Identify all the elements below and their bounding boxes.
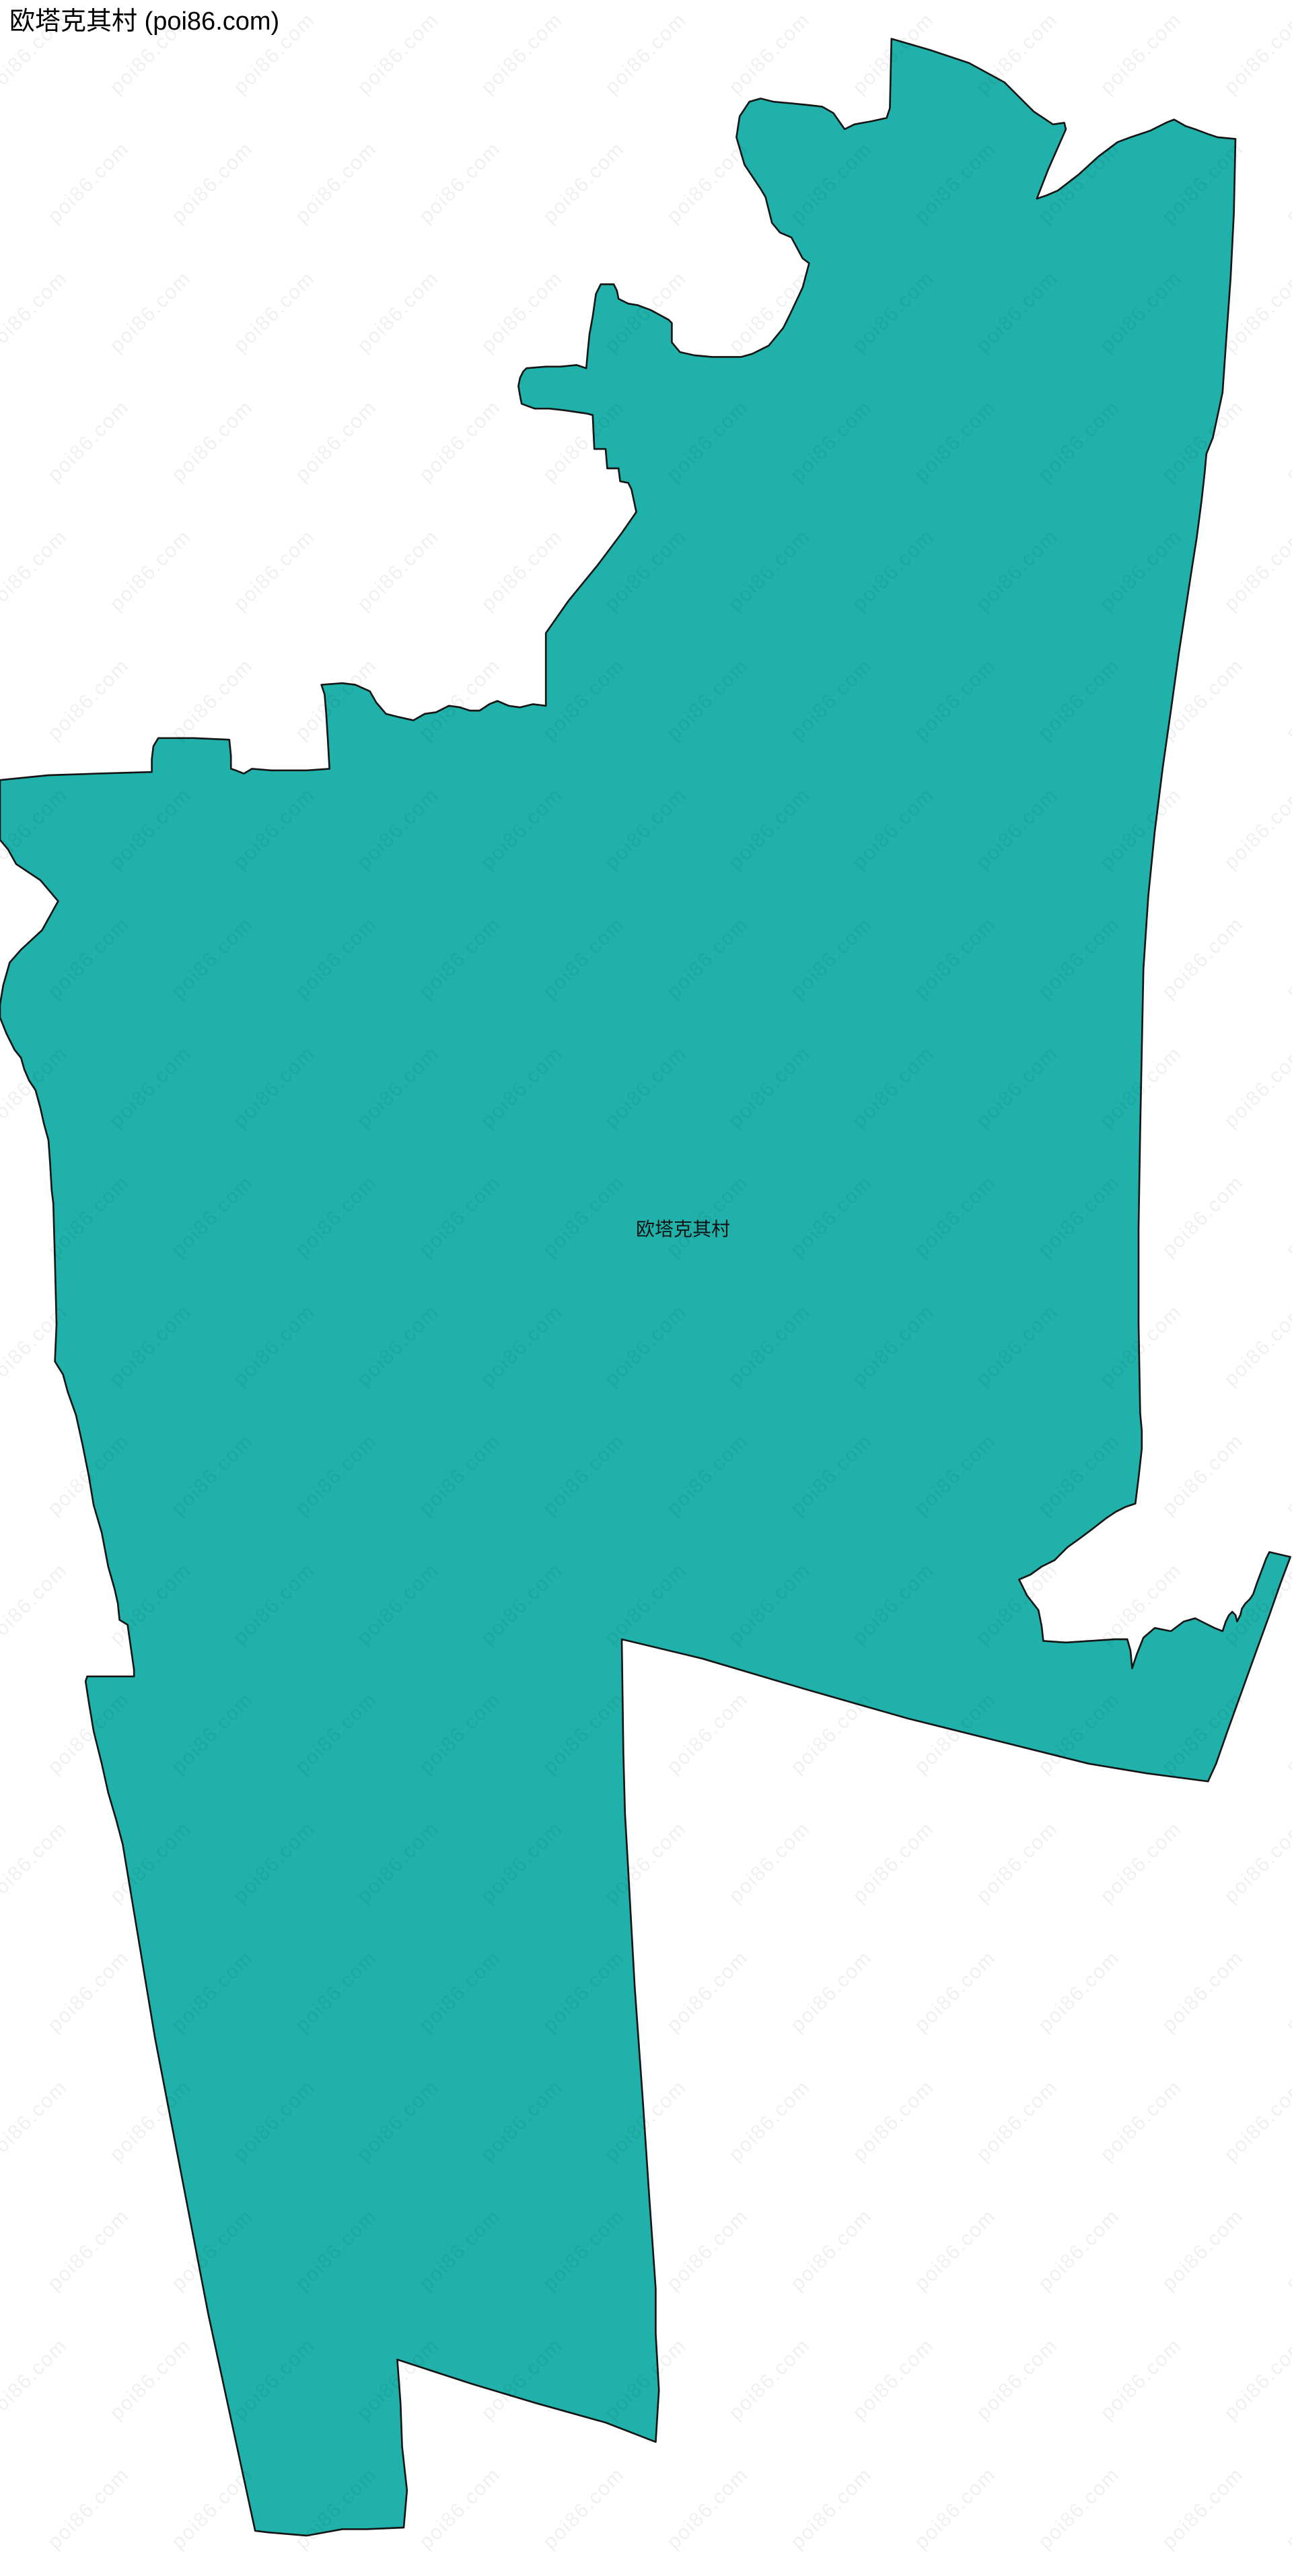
- region-map-svg: [0, 0, 1292, 2576]
- region-label: 欧塔克其村: [636, 1215, 730, 1242]
- page-title: 欧塔克其村 (poi86.com): [9, 7, 279, 38]
- map-canvas: poi86.compoi86.compoi86.compoi86.compoi8…: [0, 0, 1292, 2576]
- region-polygon: [0, 39, 1291, 2536]
